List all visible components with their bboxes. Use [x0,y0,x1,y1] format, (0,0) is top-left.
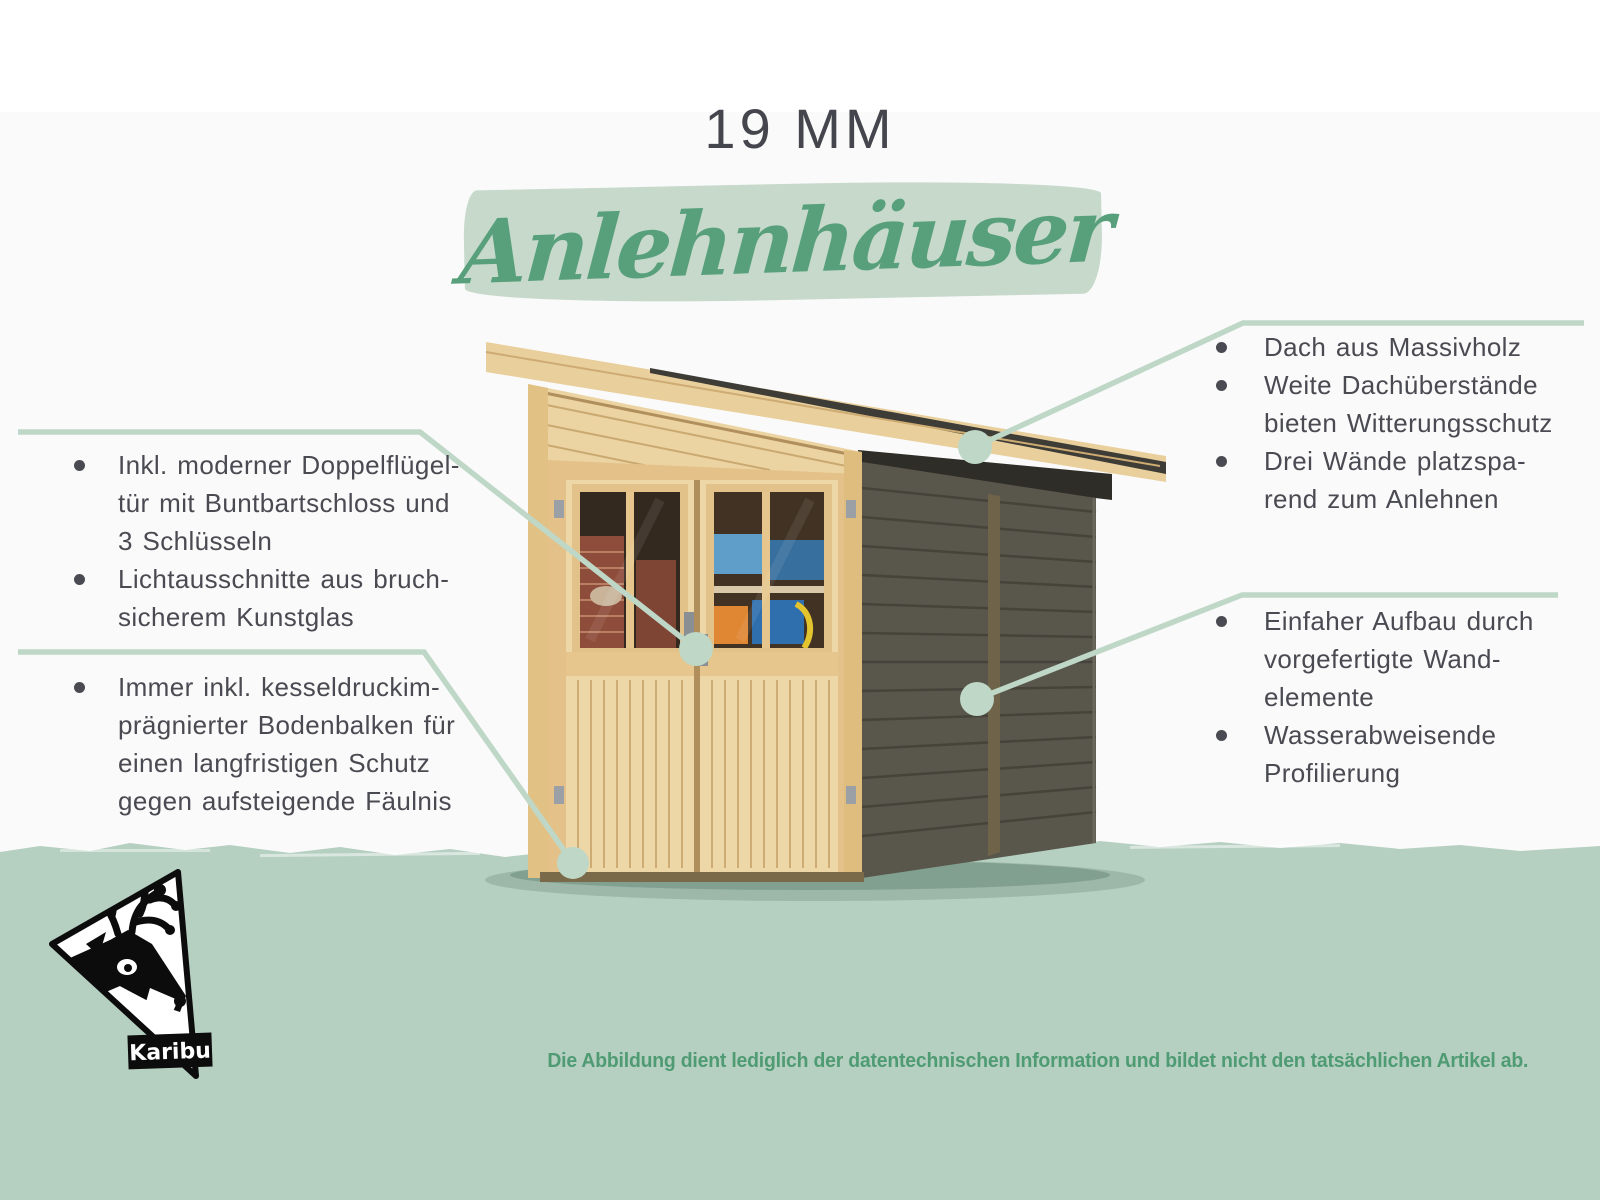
logo-wordmark: Karibu [129,1039,212,1067]
brand-logo: Karibu [0,0,1600,1200]
caribou-nose [174,995,186,1007]
infographic-canvas: 19 MM Anlehnhäuser Inkl. moderner Doppel… [0,0,1600,1200]
disclaimer-text: Die Abbildung dient lediglich der datent… [547,1050,1528,1073]
